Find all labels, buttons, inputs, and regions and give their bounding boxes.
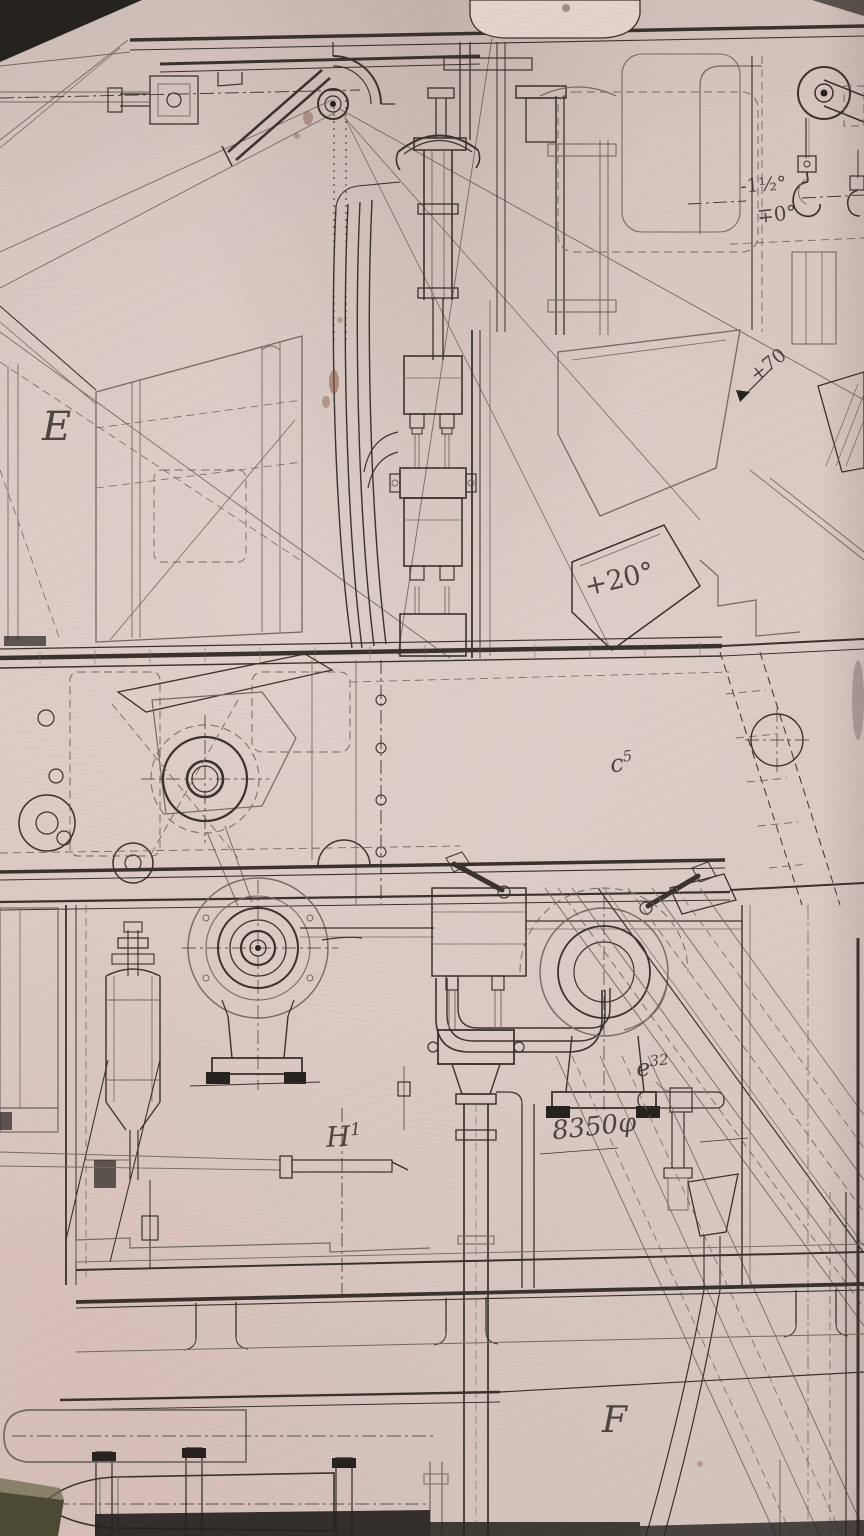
left-panel	[0, 306, 302, 642]
ladder-truss	[720, 652, 840, 905]
cable-lines	[0, 38, 864, 658]
blueprint-drawing: E F -1½° ∓0° +70 +20° c5 e32 H1 8350φ	[0, 0, 864, 1536]
recoil-cylinder	[396, 54, 758, 360]
manifold-and-blower	[300, 852, 742, 1118]
hoist-pulley-and-hooks	[558, 56, 864, 560]
accumulator-cylinder	[0, 905, 160, 1285]
elevation-gear-mechanism	[0, 42, 566, 345]
label-part-c5: c5	[608, 747, 635, 779]
drop-pipe-column	[398, 976, 534, 1536]
centrifugal-pump	[182, 878, 338, 1090]
label-angle-zero: ∓0°	[756, 200, 798, 228]
label-part-e32: e32	[635, 1050, 671, 1082]
label-part-h1: H1	[325, 1119, 362, 1154]
label-section-f: F	[602, 1400, 627, 1441]
deck-beams-lower	[60, 1238, 864, 1410]
label-section-e: E	[42, 404, 71, 450]
control-valve-column	[390, 300, 490, 658]
piping-upper	[333, 182, 400, 648]
right-edge-structure	[688, 905, 858, 1536]
linework-svg	[0, 0, 864, 1536]
inclined-rails	[545, 888, 864, 1536]
bottom-edge	[0, 1478, 864, 1536]
label-angle-minus-1-half: -1½°	[739, 172, 787, 197]
tee-handle-valve	[638, 1082, 724, 1210]
